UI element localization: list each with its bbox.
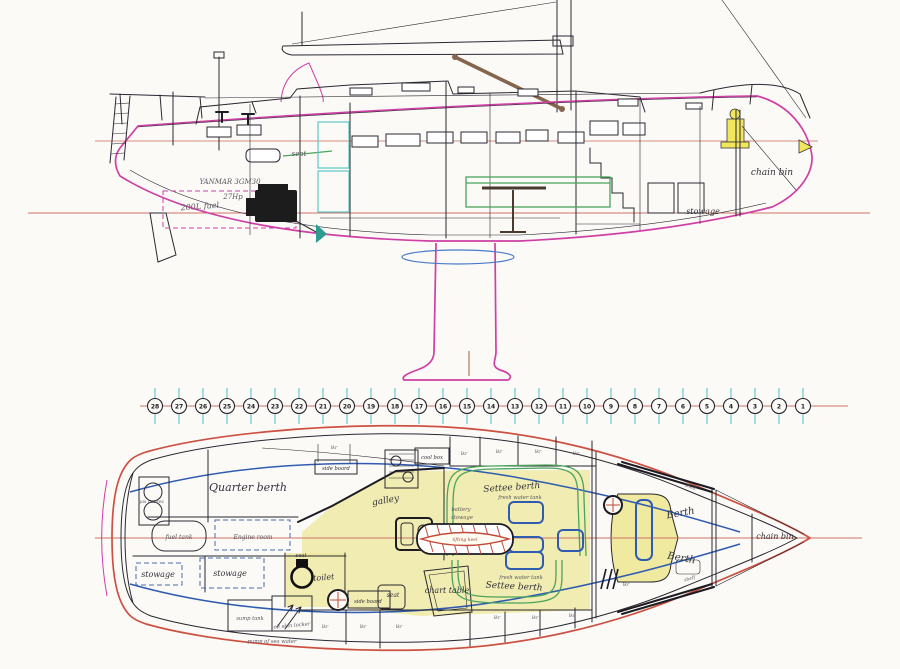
aft-bow-locker <box>648 183 674 213</box>
station-number: 5 <box>705 403 709 410</box>
lkr-label: lkr <box>496 449 503 455</box>
deck-locker <box>623 123 645 135</box>
vent-hatch <box>604 496 622 514</box>
galley-unit-lower <box>318 171 349 212</box>
rigging <box>281 0 806 118</box>
pulpit-rail <box>700 84 810 118</box>
chart-table-label: chart table <box>425 586 470 595</box>
settee-profile-outline <box>466 177 610 207</box>
bow-fitting-highlight <box>799 140 812 153</box>
vang-joint <box>559 106 565 112</box>
station-number: 10 <box>583 403 591 410</box>
station-number: 22 <box>295 403 303 410</box>
forestay-line <box>722 0 806 118</box>
deck-hatch <box>402 83 430 91</box>
hull-outline-magenta <box>116 96 813 241</box>
stern-ladder-rungs <box>111 103 129 154</box>
lkr-label: lkr <box>396 624 403 630</box>
deck-hatch <box>518 89 538 96</box>
mast <box>557 0 571 112</box>
station-number: 2 <box>777 403 781 410</box>
oil-skin-locker-label: oil skin locker <box>273 621 311 630</box>
cabin-window <box>558 132 584 143</box>
station-number: 6 <box>681 403 685 410</box>
side-board-label-bottom: side board <box>354 599 382 605</box>
stern-ladder-rails <box>110 96 130 163</box>
station-number: 27 <box>175 403 183 410</box>
boom <box>282 40 563 55</box>
deck-plate-hatch <box>328 590 348 610</box>
lkr-label: lkr <box>573 451 580 457</box>
station-number: 18 <box>391 403 399 410</box>
station-number: 28 <box>151 403 159 410</box>
vang-joint <box>452 54 458 60</box>
scanned-drawing-page: seat YANMAR 3GM30 27Hp 200L fuel chain b… <box>0 0 900 669</box>
stowage-label-left: stowage <box>141 570 175 579</box>
pump-sea-water-label: pump of sea water <box>248 639 297 645</box>
station-number: 19 <box>367 403 375 410</box>
fuel-tank-label: fuel tank <box>165 534 193 541</box>
lifting-keel-label: lifting keel <box>452 537 478 543</box>
windlass-drum <box>730 109 740 119</box>
windlass-base <box>721 142 749 148</box>
station-scale: 2827262524232221201918171615141312111098… <box>140 388 848 424</box>
keel-raised-ellipse <box>402 250 514 264</box>
rudder <box>150 213 176 262</box>
deck-hatch <box>350 88 372 95</box>
seat-label-profile: seat <box>292 150 307 158</box>
quarterberth-lockers <box>262 444 444 466</box>
deck-locker <box>590 121 618 135</box>
lifting-keel-profile <box>402 243 514 380</box>
lkr-label: lkr <box>360 624 367 630</box>
sump-tank-label: sump tank <box>236 616 264 622</box>
station-number: 11 <box>559 403 567 410</box>
drawing-canvas: seat YANMAR 3GM30 27Hp 200L fuel chain b… <box>0 0 900 669</box>
lkr-label: lkr <box>569 613 576 619</box>
station-number: 21 <box>319 403 327 410</box>
engine-room-label: Engine room <box>232 534 272 541</box>
lifting-keel-plan: lifting keel <box>417 524 513 554</box>
station-number: 14 <box>487 403 495 410</box>
station-number: 25 <box>223 403 231 410</box>
station-number: 13 <box>511 403 519 410</box>
battery-stowage-label-1: battery <box>451 507 470 513</box>
lkr-label: lkr <box>461 451 468 457</box>
station-number: 20 <box>343 403 351 410</box>
sprayhood-outline <box>281 63 323 102</box>
deck-hatch <box>458 87 474 93</box>
cabin-window <box>427 132 453 143</box>
cabin-window <box>461 132 487 143</box>
chain-bin-label-plan: chain bin <box>756 532 794 541</box>
toilet-label: toilet <box>313 572 336 583</box>
pushpit-rail <box>110 94 205 124</box>
companionway-steps <box>590 148 634 222</box>
fuel-capacity-label: 200L fuel <box>179 201 220 213</box>
cabin-window <box>386 134 420 146</box>
station-number: 16 <box>439 403 447 410</box>
station-number: 15 <box>463 403 471 410</box>
stern-gear <box>110 52 224 163</box>
gas-bottles-label: gas bottles <box>138 499 164 505</box>
boom-vang <box>455 57 562 109</box>
engine-block <box>246 184 297 222</box>
cabin-window <box>496 132 520 143</box>
engine-model-label: YANMAR 3GM30 <box>199 178 261 186</box>
chain-bin-label-profile: chain bin <box>751 168 793 178</box>
cockpit-winches <box>216 112 254 124</box>
seat-label-top: seat <box>296 553 308 559</box>
lkr-label: lkr <box>494 615 501 621</box>
lkr-label: lkr <box>331 445 338 451</box>
station-number: 24 <box>247 403 255 410</box>
side-board-label-top: side board <box>322 466 350 472</box>
station-number: 9 <box>609 403 613 410</box>
profile-view: seat YANMAR 3GM30 27Hp 200L fuel chain b… <box>28 0 870 380</box>
deck-hatch <box>686 103 702 109</box>
station-number: 8 <box>633 403 637 410</box>
main-bulkheads <box>300 82 740 238</box>
galley-unit-upper <box>318 122 349 168</box>
station-number: 17 <box>415 403 423 410</box>
quarter-berth-label: Quarter berth <box>209 481 287 494</box>
fresh-water-tank-label-bottom: fresh water tank <box>498 575 543 581</box>
cool-box-label: cool box <box>421 455 443 461</box>
gooseneck-fitting <box>553 36 573 46</box>
battery-stowage-label-2: stowage <box>451 515 473 521</box>
station-number: 23 <box>271 403 279 410</box>
lkr-label: lkr <box>322 624 329 630</box>
station-number: 4 <box>729 403 733 410</box>
stowage-label-mid: stowage <box>213 569 247 578</box>
station-number: 3 <box>753 403 757 410</box>
lkr-label: lkr <box>532 615 539 621</box>
saloon-table-pedestal <box>500 190 526 232</box>
cabin-window <box>237 125 261 135</box>
engine-power-label: 27Hp <box>222 193 243 201</box>
fresh-water-tank-label-top: fresh water tank <box>497 495 542 501</box>
plan-view: lifting keel gas bottles Quarter berth f… <box>95 426 862 651</box>
station-number: 12 <box>535 403 543 410</box>
cabin-window <box>207 127 231 137</box>
deck-structures <box>196 81 702 162</box>
hull-port-window <box>246 149 280 162</box>
lkr-label: lkr <box>535 449 542 455</box>
cabin-window <box>352 136 378 147</box>
stowage-label-profile: stowage <box>686 207 720 216</box>
station-number: 1 <box>801 403 805 410</box>
forward-bulkhead <box>592 441 596 622</box>
station-number: 7 <box>657 403 661 410</box>
deck-edge-line <box>138 97 757 127</box>
lkr-label: lkr <box>623 582 630 588</box>
cabin-window <box>526 130 548 141</box>
station-number: 26 <box>199 403 207 410</box>
deck-hatch <box>618 99 638 106</box>
seat-label-nav: seat <box>387 592 400 599</box>
topping-lift-line <box>292 2 556 44</box>
